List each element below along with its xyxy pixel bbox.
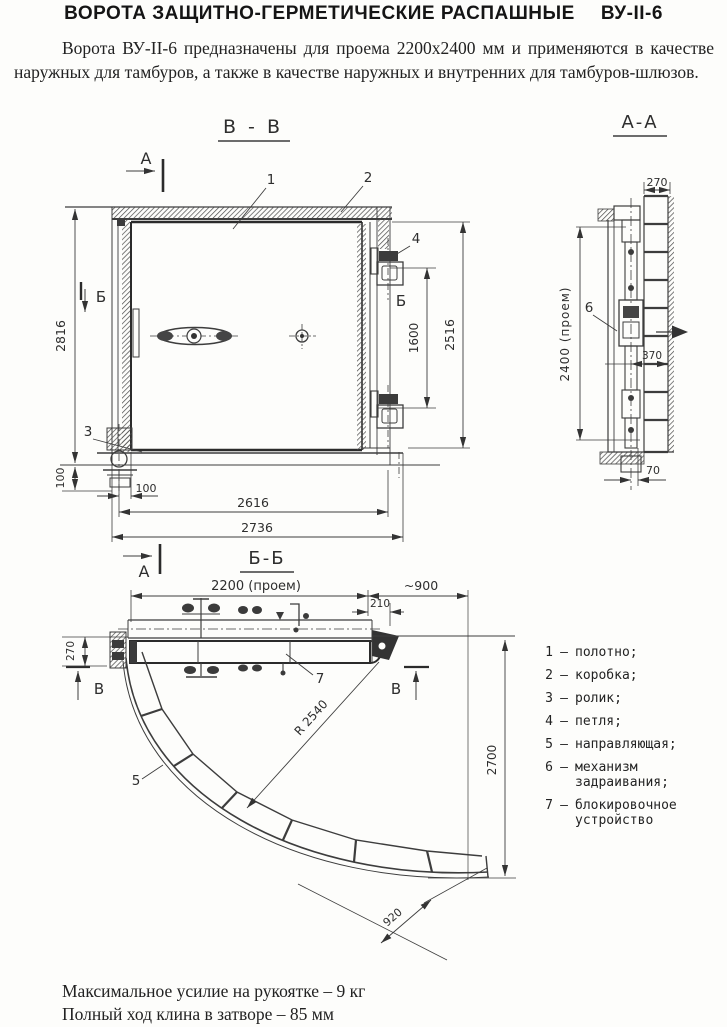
section-marker-b-left: Б — [81, 282, 106, 312]
dim-frame-depth: 270 — [647, 176, 668, 189]
note-wedge-travel: Полный ход клина в затворе – 85 мм — [62, 1003, 365, 1026]
legend-num: 6 — [540, 760, 553, 790]
leaf-bar — [130, 641, 381, 663]
section-marker-v-right: В — [391, 667, 429, 700]
technical-drawing: В - В А А Б Б — [0, 0, 727, 1023]
part-label-5: 5 — [132, 773, 141, 789]
legend-item: 5 – направляющая; — [540, 737, 720, 752]
legend-term: полотно; — [575, 645, 695, 660]
dim-guide-radius: R 2540 — [292, 697, 331, 738]
notes: Максимальное усилие на рукоятке – 9 кг П… — [62, 980, 365, 1027]
part-label-4: 4 — [412, 231, 421, 247]
legend-term: блокировочное устройство — [575, 798, 695, 828]
dim-leaf-width: 2616 — [237, 495, 269, 510]
parts-legend: 1 – полотно; 2 – коробка; 3 – ролик; 4 –… — [540, 645, 720, 836]
legend-num: 1 — [540, 645, 553, 660]
dim-hinge-span: 1600 — [407, 323, 421, 354]
legend-dash: – — [553, 760, 575, 790]
view-side-section: А-А — [558, 112, 688, 490]
legend-item: 6 – механизм задраивания; — [540, 760, 720, 790]
dim-bottom-offset: 70 — [646, 464, 660, 477]
frame-profile — [644, 196, 674, 452]
legend-dash: – — [553, 668, 575, 683]
legend-term: петля; — [575, 714, 695, 729]
dim-leaf-thickness: 270 — [65, 641, 77, 661]
view-side-title: А-А — [621, 112, 658, 133]
legend-num: 2 — [540, 668, 553, 683]
section-marker-v-left: В — [66, 667, 104, 700]
part-label-6: 6 — [585, 300, 594, 316]
dim-roller-offset: 100 — [136, 482, 157, 495]
leaf-plate — [133, 309, 139, 357]
svg-text:В: В — [94, 680, 104, 698]
dim-right-height: 2516 — [442, 319, 457, 351]
dim-opening-width: 2200 (проем) — [211, 579, 301, 594]
legend-num: 3 — [540, 691, 553, 706]
legend-term: направляющая; — [575, 737, 695, 752]
clamp-mechanisms-top — [182, 598, 309, 638]
legend-dash: – — [553, 737, 575, 752]
dims-plan: 2200 (проем) ~900 210 270 R 2540 920 — [62, 578, 516, 960]
view-plan-section: Б-Б — [62, 548, 516, 960]
legend-dash: – — [553, 798, 575, 828]
dim-swing-height: 2700 — [485, 745, 499, 776]
lintel-hatch — [112, 207, 392, 219]
left-jamb-hatch — [122, 219, 130, 452]
part-label-7: 7 — [316, 671, 325, 687]
section-marker-a-bottom: А — [123, 544, 160, 581]
svg-text:А: А — [141, 149, 152, 168]
hinge-lower — [371, 385, 403, 448]
legend-item: 3 – ролик; — [540, 691, 720, 706]
legend-term: коробка; — [575, 668, 695, 683]
handle-wheel — [150, 328, 240, 345]
legend-term: механизм задраивания; — [575, 760, 695, 790]
view-front-title: В - В — [223, 116, 283, 138]
legend-num: 4 — [540, 714, 553, 729]
legend-item: 2 – коробка; — [540, 668, 720, 683]
view-plan-title: Б-Б — [248, 548, 285, 569]
part-label-1: 1 — [267, 172, 276, 188]
dim-opening-height: 2400 (проем) — [558, 287, 572, 382]
clamp-mechanisms-bottom — [184, 663, 286, 677]
scanned-drawing-page: { "page": { "title": "ВОРОТА ЗАЩИТНО-ГЕР… — [0, 0, 727, 1023]
dims-front: 2816 100 100 2616 2736 1600 — [53, 209, 470, 542]
dim-hinge-offset: 210 — [370, 598, 390, 610]
view-front-section: В - В А А Б Б — [53, 116, 470, 581]
svg-text:В: В — [391, 680, 401, 698]
dim-total-width: 2736 — [241, 520, 273, 535]
svg-text:Б: Б — [96, 288, 106, 306]
part-label-2: 2 — [364, 170, 373, 186]
hinge-pivot — [372, 628, 399, 662]
legend-dash: – — [553, 691, 575, 706]
legend-term: ролик; — [575, 691, 695, 706]
section-marker-a-top: А — [126, 149, 163, 192]
svg-text:А: А — [139, 562, 150, 581]
legend-num: 7 — [540, 798, 553, 828]
legend-dash: – — [553, 645, 575, 660]
note-handle-force: Максимальное усилие на рукоятке – 9 кг — [62, 980, 365, 1003]
legend-num: 5 — [540, 737, 553, 752]
dim-total-height: 2816 — [53, 320, 68, 352]
section-marker-b-right: Б — [396, 292, 406, 310]
dim-sill-height: 100 — [54, 468, 67, 489]
part-label-3: 3 — [84, 424, 93, 440]
legend-dash: – — [553, 714, 575, 729]
roller-assembly — [103, 424, 137, 495]
legend-item: 4 – петля; — [540, 714, 720, 729]
dim-swing: ~900 — [404, 578, 438, 593]
lock-knob — [289, 324, 316, 349]
dim-axis-offset: 370 — [642, 350, 662, 362]
legend-item: 7 – блокировочное устройство — [540, 798, 720, 828]
guide-rail-arc — [123, 652, 489, 878]
legend-item: 1 – полотно; — [540, 645, 720, 660]
